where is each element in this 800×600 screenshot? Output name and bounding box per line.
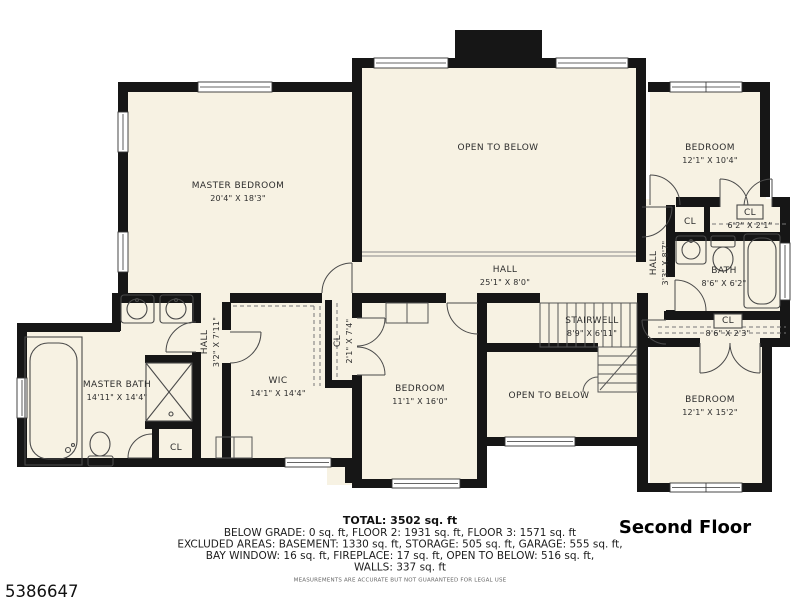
room-dims-bedroom-lower-right: 12'1" X 15'2" [682, 408, 737, 417]
window [670, 82, 742, 92]
floor-plan: MASTER BEDROOM20'4" X 18'3"OPEN TO BELOW… [0, 0, 800, 600]
footer: TOTAL: 3502 sq. ft BELOW GRADE: 0 sq. ft… [5, 514, 751, 600]
room-dims-stairwell: 8'9" X 6'11" [567, 329, 617, 338]
room-dims-closet-6-2: 6'2" X 2'1" [728, 221, 773, 230]
chimney [455, 30, 542, 68]
window [505, 437, 575, 446]
window [670, 483, 742, 492]
room-dims-master-bedroom: 20'4" X 18'3" [210, 194, 265, 203]
floorplan-page: MASTER BEDROOM20'4" X 18'3"OPEN TO BELOW… [0, 0, 800, 600]
window [118, 112, 128, 152]
summary-line3: EXCLUDED AREAS: BASEMENT: 1330 sq. ft, S… [177, 539, 622, 551]
room-dims-bedroom-center: 11'1" X 16'0" [392, 397, 447, 406]
room-label-closet-2-1: CL [333, 335, 343, 347]
room-label-master-bath: MASTER BATH [83, 380, 151, 390]
room-label-closet-master-bath: CL [170, 443, 182, 453]
room-label-bedroom-upper-right: BEDROOM [685, 143, 735, 153]
window [392, 479, 460, 488]
room-label-wic: WIC [268, 376, 287, 386]
floor-title: Second Floor [619, 517, 751, 538]
window [118, 232, 128, 272]
room-label-hall-upper: HALL [493, 265, 518, 275]
room-dims-closet-8-6: 8'6" X 2'3" [706, 329, 751, 338]
room-label-closet-8-6: CL [722, 316, 734, 326]
summary-line4: BAY WINDOW: 16 sq. ft, FIREPLACE: 17 sq.… [206, 550, 594, 562]
window [198, 82, 272, 92]
room-label-bedroom-center: BEDROOM [395, 384, 445, 394]
room-label-hall-right: HALL [649, 251, 659, 276]
window [556, 58, 628, 68]
room-dims-hall-master: 3'2" X 7'11" [212, 317, 221, 367]
room-label-master-bedroom: MASTER BEDROOM [192, 181, 285, 191]
room-label-bath: BATH [711, 266, 737, 276]
room-dims-bedroom-upper-right: 12'1" X 10'4" [682, 156, 737, 165]
room-label-hall-master: HALL [200, 330, 210, 355]
window [285, 458, 331, 467]
disclaimer-text: MEASUREMENTS ARE ACCURATE BUT NOT GUARAN… [294, 578, 507, 584]
room-dims-master-bath: 14'11" X 14'4" [87, 393, 148, 402]
room-label-stairwell: STAIRWELL [565, 316, 618, 326]
summary-line5: WALLS: 337 sq. ft [354, 562, 446, 574]
room-dims-wic: 14'1" X 14'4" [250, 389, 305, 398]
summary-total: TOTAL: 3502 sq. ft [343, 514, 457, 527]
room-label-bedroom-lower-right: BEDROOM [685, 395, 735, 405]
window [374, 58, 448, 68]
window [780, 243, 790, 300]
room-dims-hall-right: 3'3" X 8'7" [661, 241, 670, 286]
room-label-closet-6-2: CL [744, 208, 756, 218]
room-dims-closet-2-1: 2'1" X 7'4" [345, 319, 354, 364]
summary-line2: BELOW GRADE: 0 sq. ft, FLOOR 2: 1931 sq.… [224, 527, 576, 539]
listing-id: 5386647 [5, 582, 79, 600]
room-dims-hall-upper: 25'1" X 8'0" [480, 278, 530, 287]
room-label-open-to-below-upper: OPEN TO BELOW [458, 143, 539, 153]
room-label-closet-hall-right: CL [684, 217, 696, 227]
room-dims-bath: 8'6" X 6'2" [702, 279, 747, 288]
room-label-open-to-below-lower: OPEN TO BELOW [509, 391, 590, 401]
